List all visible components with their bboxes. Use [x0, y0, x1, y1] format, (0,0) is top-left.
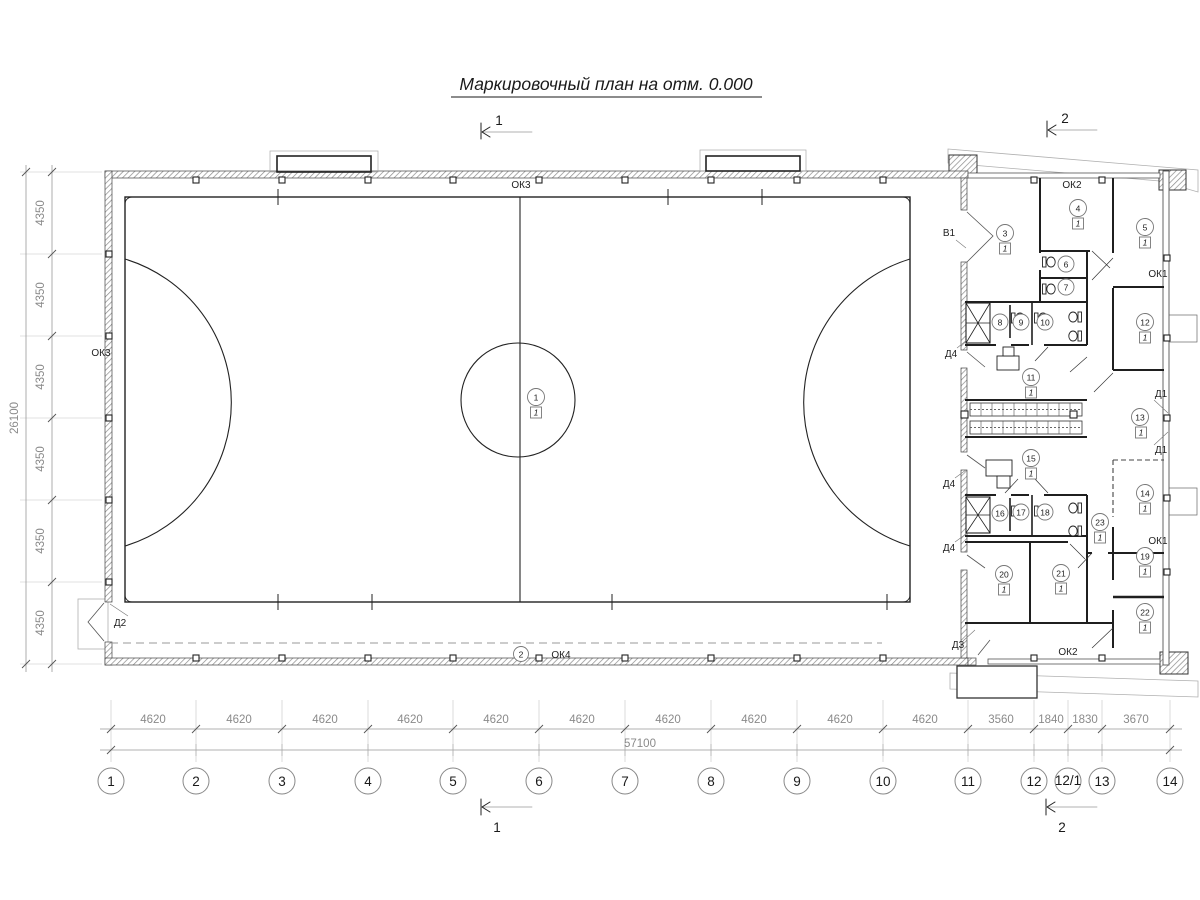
- dim-seg-left: 4350: [35, 364, 47, 390]
- room-marker-3: 3 1: [997, 225, 1014, 255]
- section-mark-2-bottom: 2: [1046, 799, 1097, 835]
- sports-field: [125, 189, 910, 610]
- room-marker-4: 4 1: [1070, 200, 1087, 230]
- dim-seg: 4620: [226, 714, 252, 726]
- room-number: 14: [1140, 489, 1150, 499]
- dim-seg: 4620: [140, 714, 166, 726]
- room-number: 8: [998, 318, 1003, 328]
- section-label-2-top: 2: [1061, 111, 1069, 126]
- dim-seg: 4620: [569, 714, 595, 726]
- label-d4-b: Д4: [943, 479, 956, 490]
- room-number: 23: [1095, 518, 1105, 528]
- wall-stub-bottom: [968, 658, 976, 665]
- grid-axis-label: 12: [1026, 774, 1041, 789]
- label-d4-c: Д4: [943, 543, 956, 554]
- room-number: 20: [999, 570, 1009, 580]
- bench-rows: [961, 403, 1082, 434]
- door-leaf-v1: [967, 212, 993, 262]
- grid-axis-label: 2: [192, 774, 200, 789]
- field-ticks: [278, 189, 887, 610]
- dim-seg-left: 4350: [35, 610, 47, 636]
- label-d1-lower: Д1: [1155, 445, 1168, 456]
- dim-seg: 3670: [1123, 714, 1149, 726]
- floor-type: 1: [1143, 504, 1148, 514]
- room-marker-21: 21 1: [1053, 565, 1070, 595]
- field-corner-arcs: [125, 197, 910, 602]
- grid-axis-label: 7: [621, 774, 629, 789]
- room-number: 18: [1040, 508, 1050, 518]
- room-marker-22: 22 1: [1137, 604, 1154, 634]
- room-number: 16: [995, 509, 1005, 519]
- room-number: 13: [1135, 413, 1145, 423]
- room-number: 12: [1140, 318, 1150, 328]
- dim-seg: 1830: [1072, 714, 1098, 726]
- wall-window-top-right: [968, 173, 1160, 178]
- grid-axis-label: 4: [364, 774, 372, 789]
- dim-seg-left: 4350: [35, 528, 47, 554]
- section-mark-1-bottom: 1: [481, 799, 532, 835]
- section-label-2-bottom: 2: [1058, 820, 1066, 835]
- room-number: 17: [1016, 508, 1026, 518]
- desk-room-11: [997, 347, 1019, 370]
- room-marker-19: 19 1: [1137, 548, 1154, 578]
- room-marker-9: 9: [1013, 314, 1029, 330]
- floor-type: 1: [1002, 585, 1007, 595]
- section-mark-2-top: 2: [1047, 111, 1097, 137]
- grid-axes: 1 2 3 4 5 6 7 8 9 10 11 12 12/1 13 14: [98, 768, 1183, 794]
- grid-axis-label: 12/1: [1055, 773, 1081, 788]
- bottom-dimensions: 4620 4620 4620 4620 4620 4620 4620 4620 …: [100, 700, 1182, 762]
- room-number: 4: [1076, 204, 1081, 214]
- dim-seg: 3560: [988, 714, 1014, 726]
- grid-axis-label: 6: [535, 774, 543, 789]
- room-marker-20: 20 1: [996, 566, 1013, 596]
- section-mark-1-top: 1: [481, 113, 532, 139]
- room-marker-6: 6: [1058, 256, 1074, 272]
- section-label-1-top: 1: [495, 113, 503, 128]
- floor-type: 1: [1029, 388, 1034, 398]
- wall-left-upper: [105, 171, 112, 602]
- room-marker-13: 13 1: [1132, 409, 1149, 439]
- label-ok2-bottom: ОК2: [1058, 647, 1078, 658]
- dim-seg: 4620: [655, 714, 681, 726]
- grid-axis-label: 5: [449, 774, 457, 789]
- outer-walls: [105, 171, 1197, 665]
- grid-extension-lines: [111, 700, 1170, 762]
- label-d1-upper: Д1: [1155, 389, 1168, 400]
- dim-seg: 4620: [397, 714, 423, 726]
- room-number: 15: [1026, 454, 1036, 464]
- dim-seg: 1840: [1038, 714, 1064, 726]
- floor-type: 1: [1139, 428, 1144, 438]
- dim-total-label: 57100: [624, 738, 656, 750]
- label-ok3-top: ОК3: [511, 180, 531, 191]
- room-number: 19: [1140, 552, 1150, 562]
- left-dimensions: 4350 4350 4350 4350 4350 4350 26100: [9, 165, 102, 672]
- grid-axis-label: 13: [1094, 774, 1109, 789]
- floor-plan-svg: Маркировочный план на отм. 0.000 1 2 1 2: [0, 0, 1200, 900]
- floor-type: 1: [1143, 623, 1148, 633]
- room-marker-10: 10: [1037, 314, 1053, 330]
- room-number: 3: [1003, 229, 1008, 239]
- page-title: Маркировочный план на отм. 0.000: [459, 74, 752, 94]
- porch-bottom-left: [78, 599, 108, 649]
- grid-axis-label: 1: [107, 774, 115, 789]
- room-number: 10: [1040, 318, 1050, 328]
- field-right-arc: [804, 259, 910, 546]
- wall-window-bottom-right: [988, 659, 1160, 664]
- room-number: 6: [1064, 260, 1069, 270]
- grid-axis-label: 3: [278, 774, 286, 789]
- grid-axis-label: 10: [875, 774, 890, 789]
- hall-details: [88, 212, 993, 655]
- label-ok3-left: ОК3: [91, 348, 111, 359]
- room-number: 2: [519, 650, 524, 660]
- label-d4-a: Д4: [945, 349, 958, 360]
- room-marker-15: 15 1: [1023, 450, 1040, 480]
- floor-type: 1: [1059, 584, 1064, 594]
- grid-axis-label: 8: [707, 774, 715, 789]
- room-marker-8: 8: [992, 314, 1008, 330]
- room-marker-5: 5 1: [1137, 219, 1154, 249]
- room-marker-16: 16: [992, 505, 1008, 521]
- room-number: 1: [534, 393, 539, 403]
- room-number: 22: [1140, 608, 1150, 618]
- dim-total-left-label: 26100: [9, 402, 21, 434]
- label-ok4: ОК4: [551, 650, 571, 661]
- dim-seg: 4620: [741, 714, 767, 726]
- label-ok1-lower: ОК1: [1148, 536, 1168, 547]
- room-marker-11: 11 1: [1023, 369, 1040, 399]
- row-extension-lines: [20, 172, 102, 664]
- grid-axis-label: 9: [793, 774, 801, 789]
- room-number: 5: [1143, 223, 1148, 233]
- grid-axis-label: 14: [1162, 774, 1178, 789]
- label-d2: Д2: [114, 618, 127, 629]
- field-left-arc: [125, 259, 231, 546]
- label-d3: Д3: [952, 640, 965, 651]
- room-number: 21: [1056, 569, 1066, 579]
- dim-seg-left: 4350: [35, 446, 47, 472]
- floor-type: 1: [1143, 567, 1148, 577]
- desk-room-15: [986, 460, 1012, 488]
- room-marker-23: 23 1: [1092, 514, 1109, 544]
- dim-seg: 4620: [912, 714, 938, 726]
- floor-type: 1: [1143, 333, 1148, 343]
- window-sill-lower: [1169, 488, 1197, 515]
- field-boundary: [125, 197, 910, 602]
- floor-type: 1: [1098, 533, 1103, 543]
- room-number: 9: [1019, 318, 1024, 328]
- room-marker-7: 7: [1058, 279, 1074, 295]
- room-marker-14: 14 1: [1137, 485, 1154, 515]
- dim-seg: 4620: [312, 714, 338, 726]
- room-number: 11: [1027, 373, 1036, 383]
- goal-canopies: [270, 150, 806, 172]
- floor-type: 1: [1029, 469, 1034, 479]
- room-marker-12: 12 1: [1137, 314, 1154, 344]
- room-marker-2: 2: [514, 647, 529, 662]
- floor-type: 1: [1076, 219, 1081, 229]
- floor-type: 1: [534, 408, 539, 418]
- drawing-sheet: Маркировочный план на отм. 0.000 1 2 1 2: [0, 0, 1200, 900]
- title-block: Маркировочный план на отм. 0.000: [451, 74, 762, 97]
- dim-seg-left: 4350: [35, 282, 47, 308]
- label-ok1-upper: ОК1: [1148, 269, 1168, 280]
- dim-seg-left: 4350: [35, 200, 47, 226]
- field-center-circle: [461, 343, 575, 457]
- label-v1: В1: [943, 228, 956, 239]
- room-marker-18: 18: [1037, 504, 1053, 520]
- shaft-hatched-lower: [966, 497, 990, 533]
- dim-seg: 4620: [483, 714, 509, 726]
- door-leaf-d2: [88, 603, 104, 641]
- label-ok2-top: ОК2: [1062, 180, 1082, 191]
- room-number: 7: [1064, 283, 1069, 293]
- dim-seg: 4620: [827, 714, 853, 726]
- window-sill-upper: [1169, 315, 1197, 342]
- floor-type: 1: [1143, 238, 1148, 248]
- section-label-1-bottom: 1: [493, 820, 501, 835]
- room-marker-17: 17: [1013, 504, 1029, 520]
- floor-type: 1: [1003, 244, 1008, 254]
- grid-axis-label: 11: [961, 774, 975, 789]
- room-marker-1: 1 1: [528, 389, 545, 419]
- shaft-hatched-upper: [966, 303, 990, 343]
